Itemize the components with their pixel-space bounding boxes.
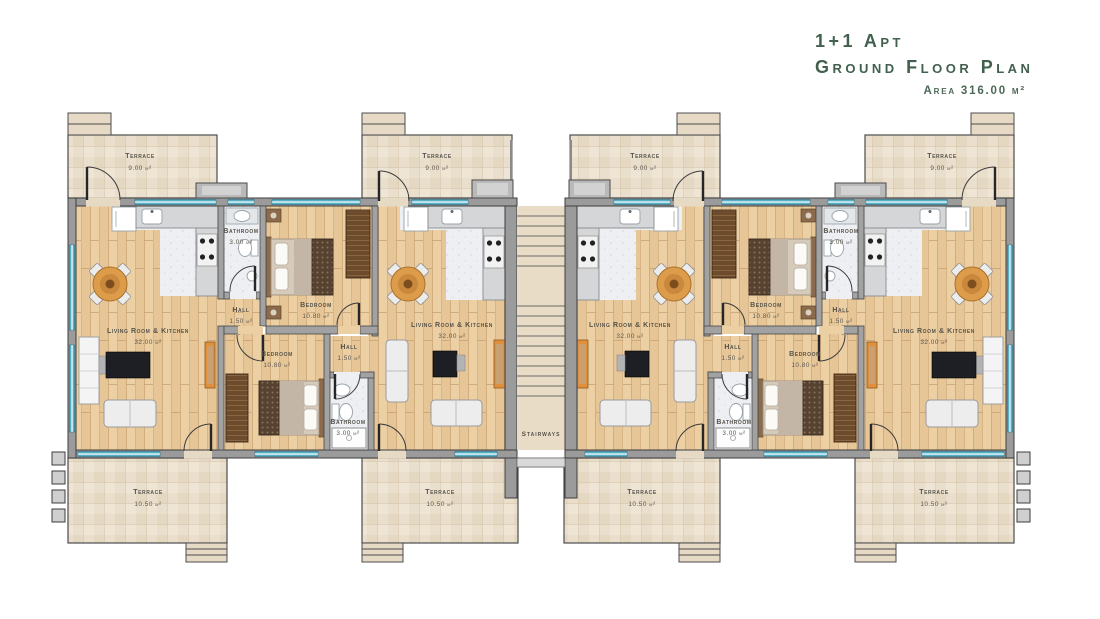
terrace-front-3-label: Terrace [630,153,660,160]
svg-text:1.50 m²: 1.50 m² [721,355,744,362]
terrace-back-4-label: Terrace [919,489,949,496]
svg-text:1.50 m²: 1.50 m² [229,318,252,325]
svg-text:1.50 m²: 1.50 m² [337,355,360,362]
hall-4-label: Hall [832,307,849,314]
dining-table [387,263,429,305]
terrace-front-2-label: Terrace [422,153,452,160]
svg-text:32.00 m²: 32.00 m² [134,339,161,346]
plan-type-title: 1+1 Apt [815,31,904,51]
bedroom-4-label: Bedroom [789,351,821,358]
svg-text:10.80 m²: 10.80 m² [263,362,290,369]
svg-text:3.00 m²: 3.00 m² [722,430,745,437]
hall-1-label: Hall [232,307,249,314]
bedroom-2-furniture [226,374,324,442]
svg-text:10.50 m²: 10.50 m² [920,501,947,508]
svg-text:10.50 m²: 10.50 m² [628,501,655,508]
svg-text:32.00 m²: 32.00 m² [616,333,643,340]
hall-2-label: Hall [340,344,357,351]
bathroom-3-label: Bathroom [716,419,751,426]
floor-plan-page: Living Room & Kitchen 32.00 m² Bathroom … [0,0,1100,619]
console-2 [494,340,505,388]
svg-text:1.50 m²: 1.50 m² [829,318,852,325]
terrace-back-1-label: Terrace [133,489,163,496]
svg-text:9.00 m²: 9.00 m² [128,165,151,172]
svg-text:3.00 m²: 3.00 m² [829,239,852,246]
terrace-back-3-label: Terrace [627,489,657,496]
svg-text:10.80 m²: 10.80 m² [302,313,329,320]
bedroom-3-label: Bedroom [750,302,782,309]
wardrobe-1 [346,210,370,278]
living-1-label: Living Room & Kitchen [107,328,189,335]
dining-table [89,263,131,305]
svg-text:32.00 m²: 32.00 m² [438,333,465,340]
bedroom-1-label: Bedroom [300,302,332,309]
terrace-front-1-label: Terrace [125,153,155,160]
svg-text:10.80 m²: 10.80 m² [752,313,779,320]
bathroom-1-label: Bathroom [223,228,258,235]
svg-text:9.00 m²: 9.00 m² [425,165,448,172]
svg-text:32.00 m²: 32.00 m² [920,339,947,346]
stairways-label: Stairways [522,431,561,438]
svg-text:3.00 m²: 3.00 m² [336,430,359,437]
svg-text:9.00 m²: 9.00 m² [633,165,656,172]
living-3-label: Living Room & Kitchen [589,322,671,329]
terrace-back-2-label: Terrace [425,489,455,496]
svg-text:3.00 m²: 3.00 m² [229,239,252,246]
plan-name-title: Ground Floor Plan [815,57,1033,77]
living-2-label: Living Room & Kitchen [411,322,493,329]
bedroom-2-label: Bedroom [261,351,293,358]
terrace-front-4-label: Terrace [927,153,957,160]
plan-area-subtitle: Area 316.00 m² [924,85,1026,97]
svg-text:10.80 m²: 10.80 m² [791,362,818,369]
svg-text:9.00 m²: 9.00 m² [930,165,953,172]
wardrobe-2 [226,374,248,442]
bathroom-2-label: Bathroom [330,419,365,426]
bathroom-4-label: Bathroom [823,228,858,235]
svg-text:10.50 m²: 10.50 m² [426,501,453,508]
living-4-label: Living Room & Kitchen [893,328,975,335]
hall-3-label: Hall [724,344,741,351]
console-1 [205,342,215,388]
svg-text:10.50 m²: 10.50 m² [134,501,161,508]
floor-plan-drawing: Living Room & Kitchen 32.00 m² Bathroom … [0,0,1100,619]
